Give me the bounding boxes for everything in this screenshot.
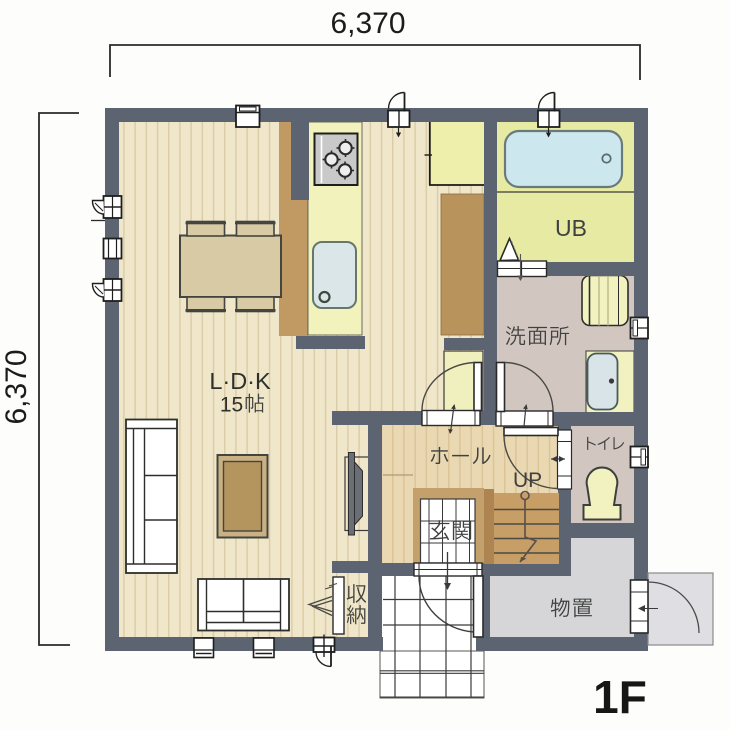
svg-text:6,370: 6,370	[330, 7, 405, 40]
svg-text:UB: UB	[555, 215, 587, 241]
svg-text:1F: 1F	[593, 671, 647, 723]
svg-text:UP: UP	[513, 469, 542, 492]
svg-text:6,370: 6,370	[0, 349, 33, 424]
svg-text:15: 15	[220, 394, 243, 417]
svg-text:L·D·K: L·D·K	[209, 368, 271, 394]
